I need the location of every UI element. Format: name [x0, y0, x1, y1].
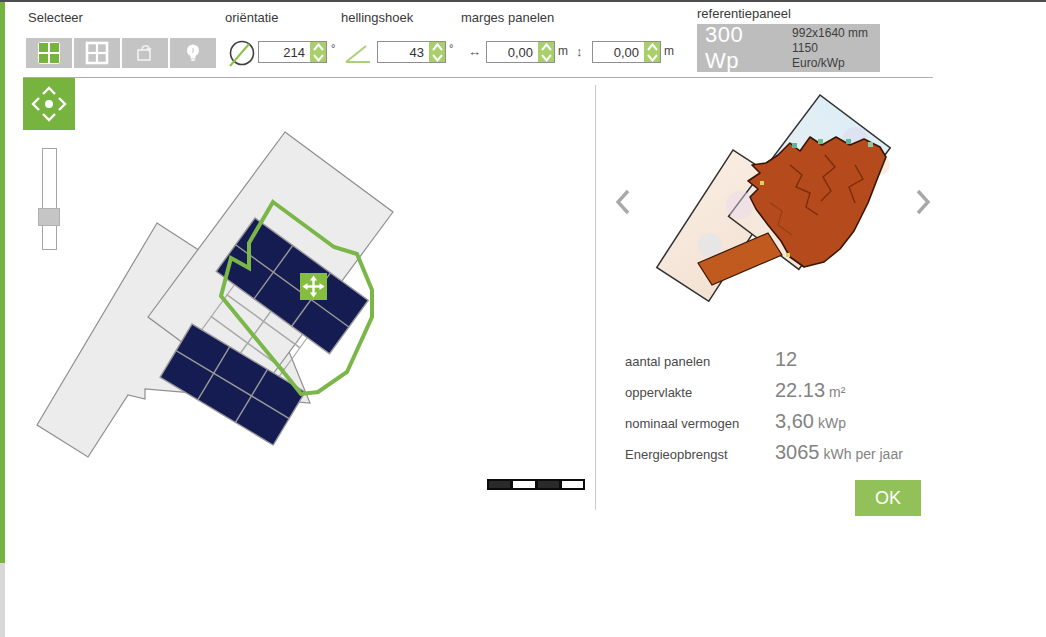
- lightbulb-icon: [181, 41, 205, 65]
- compass-icon: [227, 39, 257, 69]
- stat-value: 3065: [775, 441, 820, 464]
- stat-unit: kWh per jaar: [824, 446, 903, 462]
- map-scale-bar: [487, 479, 585, 490]
- stat-row-energy-yield: Energieopbrengst 3065 kWh per jaar: [625, 441, 925, 472]
- irradiance-toggle-button[interactable]: [170, 38, 216, 68]
- stat-label: nominaal vermogen: [625, 416, 775, 431]
- tilt-label: hellingshoek: [341, 10, 413, 25]
- select-toolbar: [26, 38, 216, 68]
- page-accent-border-bottom: [0, 563, 5, 637]
- irradiance-heatmap[interactable]: [640, 85, 910, 315]
- chevron-up-icon: [541, 43, 552, 52]
- orientation-input[interactable]: [258, 41, 310, 63]
- rotate-panels-button[interactable]: [122, 38, 168, 68]
- move-panels-handle[interactable]: [300, 273, 327, 300]
- orientation-label: oriëntatie: [225, 10, 278, 25]
- stat-unit: m²: [829, 384, 845, 400]
- chevron-down-icon: [541, 53, 552, 62]
- h-margin-input[interactable]: [486, 41, 538, 63]
- chevron-down-icon: [647, 53, 658, 62]
- chevron-up-icon: [432, 43, 443, 52]
- stat-value: 12: [775, 348, 797, 371]
- rotate-icon: [133, 41, 157, 65]
- results-summary: aantal panelen 12 oppervlakte 22.13 m² n…: [625, 348, 925, 472]
- next-roof-button[interactable]: [910, 186, 936, 218]
- orientation-field: [258, 41, 327, 63]
- chevron-down-icon: [432, 53, 443, 62]
- tilt-input[interactable]: [377, 41, 429, 63]
- chevron-right-icon: [915, 189, 931, 215]
- reference-panel-label: referentiepaneel: [697, 6, 791, 21]
- reference-panel-price: 1150 Euro/kWp: [792, 41, 872, 71]
- chevron-left-icon: [615, 189, 631, 215]
- stat-unit: kWp: [818, 415, 846, 431]
- pan-arrows-icon: [23, 78, 75, 130]
- h-margin-spinner[interactable]: [538, 41, 555, 63]
- stat-row-panel-count: aantal panelen 12: [625, 348, 925, 379]
- previous-roof-button[interactable]: [610, 186, 636, 218]
- vertical-margin-icon: ↕: [576, 44, 583, 59]
- horizontal-margin-icon: ↔: [468, 44, 481, 59]
- stat-value: 22.13: [775, 379, 825, 402]
- chevron-up-icon: [647, 43, 658, 52]
- panels-filled-icon: [38, 42, 60, 64]
- select-tools-label: Selecteer: [28, 10, 83, 25]
- stat-label: Energieopbrengst: [625, 447, 775, 462]
- panels-filled-button[interactable]: [26, 38, 72, 68]
- orientation-unit: °: [331, 42, 335, 54]
- roof-map-canvas[interactable]: [0, 77, 595, 510]
- page-top-border: [0, 0, 1046, 2]
- orientation-spinner[interactable]: [310, 41, 327, 63]
- stat-row-nominal-power: nominaal vermogen 3,60 kWp: [625, 410, 925, 441]
- h-margin-field: [486, 41, 555, 63]
- v-margin-unit: m: [664, 44, 674, 58]
- panel-margins-label: marges panelen: [461, 10, 554, 25]
- panels-outline-icon: [85, 41, 109, 65]
- v-margin-spinner[interactable]: [644, 41, 661, 63]
- panels-outline-button[interactable]: [74, 38, 120, 68]
- h-margin-unit: m: [558, 44, 568, 58]
- stat-label: aantal panelen: [625, 354, 775, 369]
- v-margin-input[interactable]: [592, 41, 644, 63]
- panel-divider: [595, 85, 596, 510]
- tilt-unit: °: [449, 42, 453, 54]
- reference-panel-selector[interactable]: 300 Wp 992x1640 mm 1150 Euro/kWp: [697, 24, 880, 72]
- reference-panel-size: 992x1640 mm: [792, 26, 872, 41]
- zoom-slider-track[interactable]: [42, 148, 57, 250]
- chevron-up-icon: [313, 43, 324, 52]
- reference-panel-power: 300 Wp: [705, 22, 782, 74]
- angle-icon: [344, 42, 372, 64]
- stat-value: 3,60: [775, 410, 814, 433]
- v-margin-field: [592, 41, 661, 63]
- stat-label: oppervlakte: [625, 385, 775, 400]
- chevron-down-icon: [313, 53, 324, 62]
- ok-button[interactable]: OK: [855, 480, 921, 516]
- tilt-spinner[interactable]: [429, 41, 446, 63]
- zoom-slider-handle[interactable]: [38, 208, 60, 226]
- map-pan-control[interactable]: [23, 78, 75, 130]
- tilt-field: [377, 41, 446, 63]
- reference-panel-specs: 992x1640 mm 1150 Euro/kWp: [792, 26, 872, 71]
- stat-row-area: oppervlakte 22.13 m²: [625, 379, 925, 410]
